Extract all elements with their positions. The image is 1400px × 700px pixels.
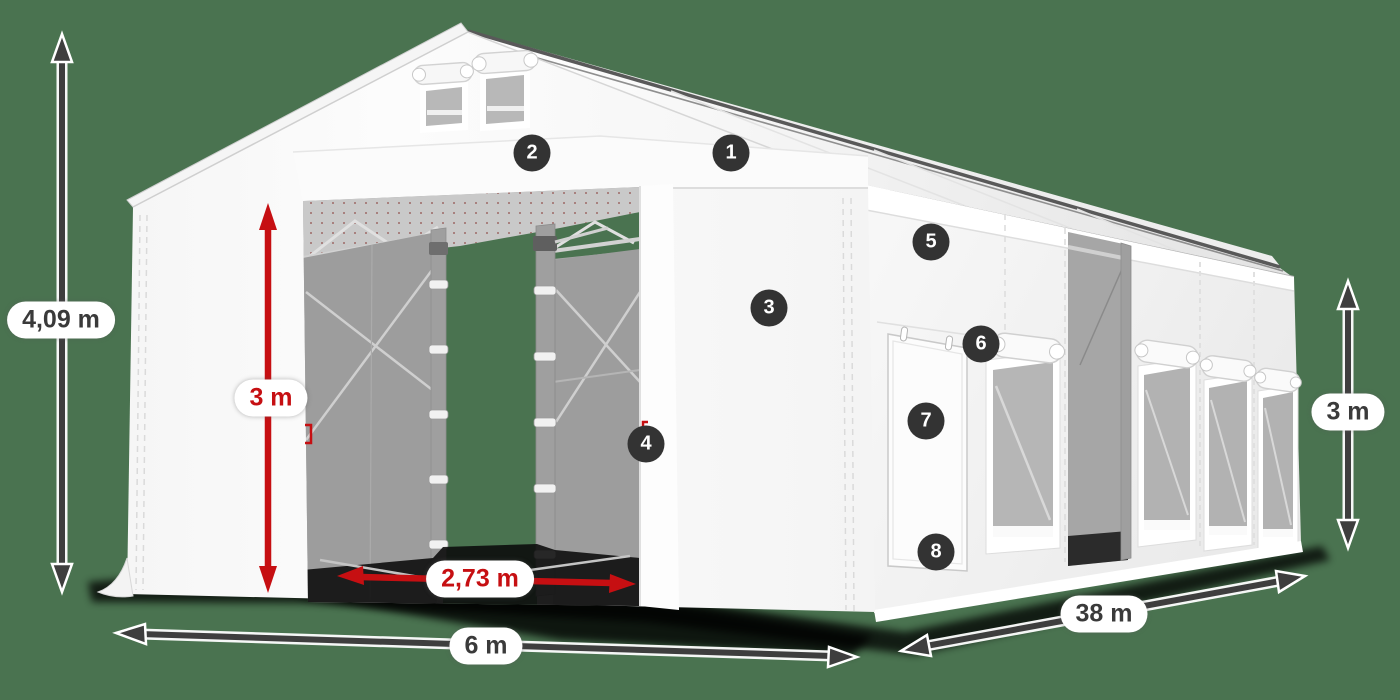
door-leaf-panel bbox=[640, 184, 679, 610]
vent-left-bar bbox=[427, 110, 462, 115]
callout-marker-4: 4 bbox=[628, 426, 665, 463]
side-window-3 bbox=[1199, 354, 1257, 551]
gable-vent-left bbox=[412, 62, 474, 133]
open-section-interior bbox=[1068, 232, 1128, 566]
side-window-4 bbox=[1253, 367, 1302, 553]
callout-marker-6: 6 bbox=[963, 326, 1000, 363]
callout-marker-8: 8 bbox=[918, 534, 955, 571]
open-section-shadow bbox=[1068, 531, 1128, 566]
vent-right-mesh bbox=[486, 75, 524, 124]
door-hook-1 bbox=[900, 327, 908, 342]
callout-marker-1: 1 bbox=[713, 135, 750, 172]
tent-product-diagram: 1 2 3 4 5 6 7 8 4,09 m 3 m 2,73 m 6 m 38… bbox=[0, 0, 1400, 700]
callout-marker-3: 3 bbox=[751, 290, 788, 327]
dim-label-side-length: 38 m bbox=[1061, 596, 1148, 633]
vent-right-bar bbox=[487, 106, 524, 111]
callout-marker-2: 2 bbox=[514, 135, 551, 172]
dim-label-front-width: 6 m bbox=[449, 628, 522, 665]
open-section bbox=[1068, 232, 1131, 566]
door-opening-interior bbox=[300, 185, 645, 610]
callout-marker-7: 7 bbox=[908, 403, 945, 440]
dim-label-side-height: 3 m bbox=[1311, 394, 1384, 431]
vent-left-roll bbox=[412, 62, 474, 85]
dim-label-door-height: 3 m bbox=[234, 380, 307, 417]
interior-left-post bbox=[429, 228, 448, 590]
window1-mesh bbox=[993, 362, 1053, 535]
vent-left-mesh bbox=[426, 87, 462, 126]
dim-label-total-height: 4,09 m bbox=[7, 302, 115, 339]
corner-post bbox=[1121, 243, 1131, 560]
front-skirt-curl bbox=[98, 558, 133, 597]
dim-label-door-width: 2,73 m bbox=[426, 561, 534, 598]
side-window-1 bbox=[986, 332, 1066, 554]
door-hook-2 bbox=[945, 336, 953, 351]
side-window-2 bbox=[1133, 339, 1200, 547]
tent-illustration bbox=[0, 0, 1400, 700]
callout-marker-5: 5 bbox=[913, 224, 950, 261]
window1-sill bbox=[993, 526, 1053, 537]
vent-right-roll bbox=[471, 50, 538, 75]
gable-vent-right bbox=[471, 50, 538, 131]
